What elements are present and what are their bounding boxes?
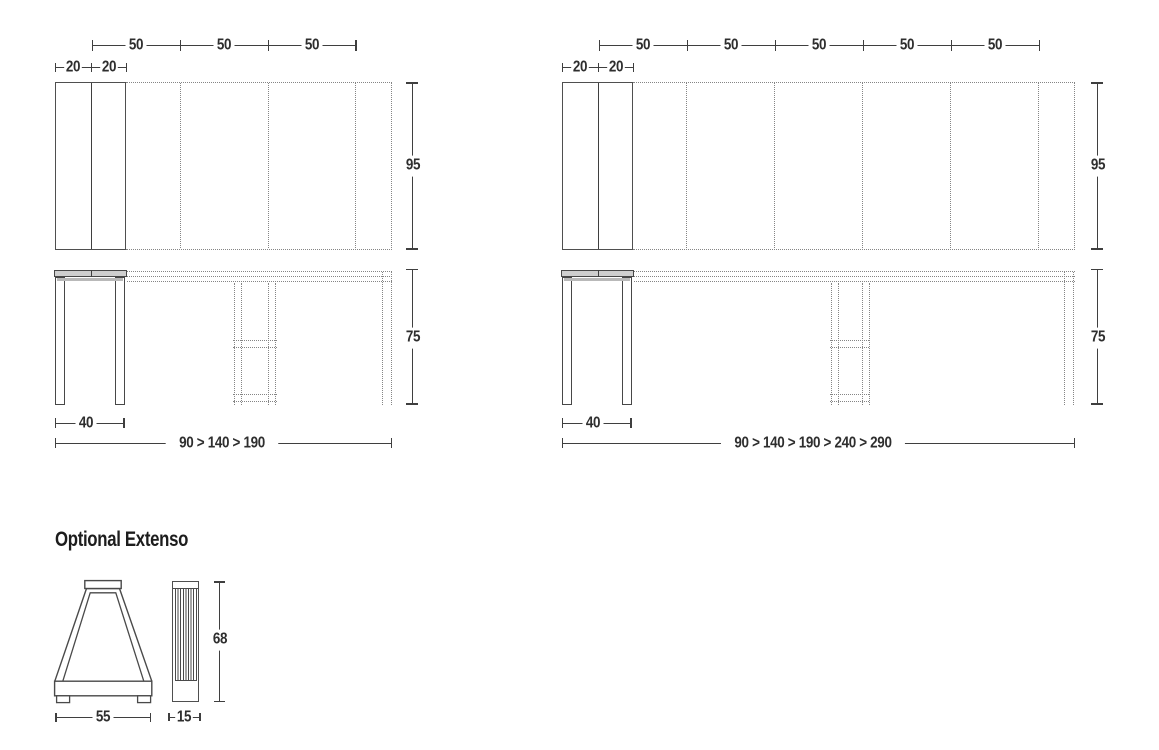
dim-label-trestle-width: 55 — [93, 710, 114, 727]
dim-tick — [214, 701, 225, 703]
section-title: Optional Extenso — [55, 528, 188, 552]
spec-sheet: 50 50 50 20 20 95 — [0, 0, 1159, 750]
trestle-base — [55, 681, 152, 696]
trestle-outer-frame — [55, 589, 152, 682]
trestle-foot — [57, 696, 70, 703]
dim-tick — [199, 713, 201, 721]
dim-label-trestle-depth: 15 — [175, 710, 193, 727]
dim-label-trestle-height: 68 — [211, 630, 229, 651]
dim-tick — [214, 581, 225, 583]
trestle-foot — [138, 696, 151, 703]
trestle-front-view — [50, 576, 160, 708]
dim-tick — [168, 713, 170, 721]
optional-extenso-section: Optional Extenso 55 15 68 — [0, 0, 1159, 750]
dim-tick — [55, 713, 57, 722]
trestle-slats-hatch — [175, 589, 197, 681]
dim-tick — [150, 713, 152, 722]
trestle-top-cap — [85, 581, 121, 589]
trestle-inner-frame — [63, 593, 144, 681]
